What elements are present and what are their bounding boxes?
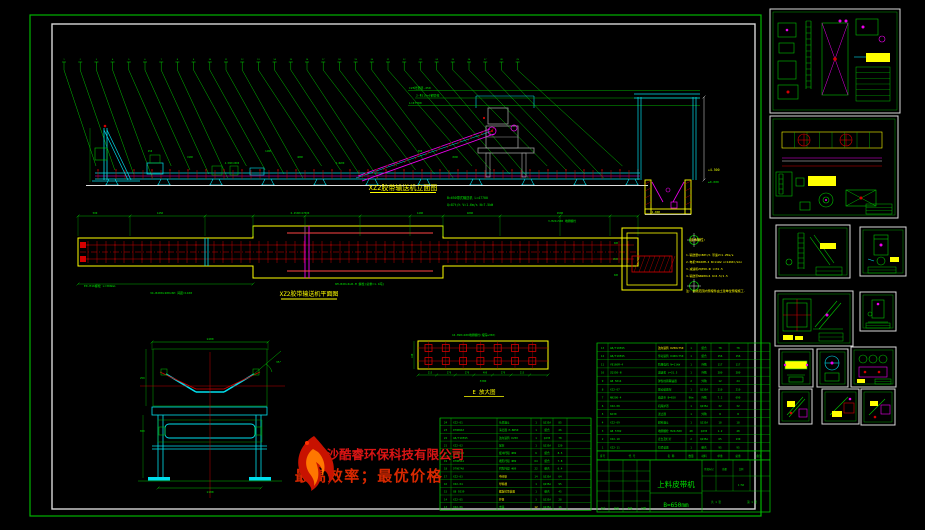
bom-cell: 156 [718,354,723,358]
bom-cell: 12 [534,505,538,509]
bom-cell: 24 [444,420,448,424]
bom-header-label: 总重 [735,454,741,458]
leader-line [420,62,509,174]
pit-hatch [645,181,651,184]
pit-dim: 600 [614,242,619,245]
plan-dot [357,258,358,259]
bom-cell: 外购 [701,362,707,366]
bom-cell: 5 [602,412,604,416]
bom-cell: 1 [690,354,692,358]
detail-sheet-2 [770,116,898,218]
idler-dot [259,169,260,170]
foot [148,477,170,481]
plan-dot [168,258,169,259]
plan-dot [303,244,304,245]
bom-cell: 卸料漏斗 [658,421,669,425]
pit-hatch [685,188,691,191]
bom-cell: 18 [444,467,448,471]
pit-plan-inner [627,233,677,285]
mid-box [250,168,264,175]
mini-rect [776,172,792,196]
tail-pulley-dot [104,125,107,128]
detail-sheet-inner-border [782,392,809,421]
balloon-number: 18 [338,59,341,61]
bom-cell: 16 [444,482,448,486]
bom-cell: 117 [736,362,741,366]
elevation-title: XZ2胶带输送机立面图 [369,183,438,192]
detail-sheet-frame [822,389,859,424]
detail-e-view: 215270270400270215 [414,341,549,376]
pit-dim: 600 [614,274,619,277]
balloon-number: 23 [419,59,422,61]
plan-dot [114,244,115,245]
balloon-number: 22 [403,59,406,61]
bom-cell: 导料槽 [499,482,507,486]
mini-block [783,335,793,340]
mini-dot [874,416,877,419]
mini-dot [825,199,827,201]
tech-line-4: 4.输送带NN200×4 δ=4.5/1.5 [686,273,728,278]
bom-header-label: 材料 [701,454,707,458]
watermark-company: 长沙酷睿环保科技有限公司 [314,447,464,462]
plan-dim-label: 500 [93,211,98,215]
plan-note-2: 34-B200×200×6H 间距≈1100 [150,290,192,295]
cad-canvas: 1234567891011121314151617181920212223242… [0,0,925,530]
leader-line [226,62,284,174]
mini-block [832,411,842,417]
stand-leg [262,179,265,185]
balloon-number: 28 [500,59,503,61]
stand-leg [219,179,222,185]
bom-cell: 8 [719,412,721,416]
balloon-number: 17 [322,59,325,61]
detail-sheet-frame [776,225,850,278]
bom-cell: XZ2-09 [610,421,620,425]
plan-note-1: E0-M16螺栓 L=300mm [84,283,115,288]
bom-header-label: 数量 [688,454,694,458]
balloon-number: 3 [96,59,98,61]
drawing-svg: 1234567891011121314151617181920212223242… [0,0,925,530]
plan-dot [546,244,547,245]
bom-cell: 45 [558,490,562,494]
balloon-number: 24 [435,59,438,61]
plan-dot [276,258,277,259]
plan-dot [384,244,385,245]
bom-header-label: 单重 [717,454,723,458]
plan-dot [249,244,250,245]
hopper-pulley [666,188,670,192]
tail-anchor [80,242,86,248]
bom-cell: 10 [601,371,605,375]
idler-dot [133,169,134,170]
leader-line [404,62,491,170]
idler-dot [151,169,152,170]
bom-cell: 40 [689,429,693,433]
detail-sheet-10 [779,389,812,424]
bom-cell: DTⅡ07A0 [453,467,464,471]
balloon-number: 9 [193,59,195,61]
idler-dot [439,169,440,170]
mini-dot [790,412,793,415]
bom-cell: 280 [718,371,723,375]
tb-label: 比例 [739,467,744,471]
bom-cell: 18 [736,421,740,425]
plan-dot [195,244,196,245]
bom-cell: 210 [736,387,741,391]
mini-rect [779,43,794,53]
balloon-number: 4 [112,59,114,61]
right-detail-panel [770,9,906,425]
bom-cell: Q235A [700,404,708,408]
detail-sheet-8 [817,349,848,387]
tech-line-1: 1.输送量Q=80t/h 带速V=1.25m/s [686,252,734,257]
bom-cell: 1 [690,387,692,391]
bom-cell: 11 [601,362,605,366]
detail-e-dim-label: 215 [428,372,433,375]
bom-cell: 32 [718,404,722,408]
bom-cell: 95 [718,445,722,449]
head-pulley-center [491,130,493,132]
mini-line [819,303,841,329]
bom-cell: XZ2-06 [453,505,463,509]
bom-cell: 2 [690,437,692,441]
bom-cell: Q235 [544,436,551,440]
balloon-number: 16 [306,59,309,61]
detail-sheet-inner-border [773,119,895,215]
tb-label: 设计 [601,506,606,510]
stand-leg [271,179,274,185]
bom-cell: 拉紧装置 [658,445,669,449]
tech-footnote: 注: 斜线范围内预埋件由土建单位预埋施工. [686,288,746,293]
mini-circle [859,355,867,363]
bom-cell: 1 [690,445,692,449]
idler-dot [601,169,602,170]
plan-note-3: 6M-B20×4LB-M 螺栓(总重≈1.1吨) [335,281,385,286]
mini-dot [878,371,881,374]
cross-section-view [138,341,285,498]
balloon-number: 15 [290,59,293,61]
plan-note-4: 3-M24×500 地脚螺栓 [548,219,576,223]
balloon-number: 6 [144,59,146,61]
bom-cell: 23 [444,428,448,432]
plan-dot [276,244,277,245]
bom-header-band [597,451,770,460]
balloon-number: 12 [241,59,244,61]
pit-plan-hatch [639,256,645,272]
mini-dot [839,20,842,23]
bom-cell: 弹性柱销联轴器 [658,379,677,383]
pit-dim: 1500 [613,258,619,261]
bom-cell: 改向滚筒 D250 [499,436,518,440]
elev-dim-label: 4-500=2000 [225,162,240,165]
bom-cell: 走台及栏杆 [658,437,672,441]
mini-dot [849,398,852,401]
detail-sheet-3 [776,225,850,278]
bom-cell: Q235A [543,497,551,501]
elev-dim-label: 4000 [297,156,303,159]
bom-cell: 78 [718,346,722,350]
tb-label: 1:50 [738,483,745,487]
bom-cell: Q235 [701,429,708,433]
balloon-number: 19 [354,59,357,61]
idler-dot [331,169,332,170]
balloon-number: 27 [484,59,487,61]
idler-dot [205,169,206,170]
detail-sheet-5 [775,291,853,346]
detail-e-dim-label: 270 [501,372,506,375]
plan-dot [141,244,142,245]
pit-plan-hatch [659,256,665,272]
plan-dot [384,258,385,259]
mini-table [866,204,892,214]
detail-sheet-inner-border [820,352,845,384]
elev-topdim-2: 2-Φ219×6钢管柱 [416,93,439,98]
phoenix-head [305,441,309,445]
detail-e-dim-label: 215 [520,372,525,375]
bom-cell: 7.2 [718,396,723,400]
elev-dim-label: 1900 [187,156,193,159]
idler-dot [367,169,368,170]
bom-cell: GB/T10595 [453,436,468,440]
incline-belt [356,131,492,178]
bom-cell: GB 5782 [610,429,622,433]
drive-platform [478,148,534,153]
stand-leg [583,179,586,185]
idler-dot [511,169,512,170]
balloon-number: 29 [516,59,519,61]
bom-right-grid [597,343,770,451]
frame-top-channel [152,407,267,415]
mini-dot [787,91,790,94]
bom-cell: 机尾护罩 [658,404,669,408]
bom-cell: XZ2-05 [453,497,463,501]
mini-block [870,401,878,406]
plan-dot [438,244,439,245]
elev-dim-label: 450 [148,150,153,153]
bom-cell: XZ2-11 [610,445,620,449]
bom-cell: GB/T10595 [610,354,625,358]
idler-dot [619,169,620,170]
bom-cell: 减速机 i=31.5 [658,371,678,375]
stand-leg [323,179,326,185]
drive-dot [483,117,485,119]
section-dim-1100: 1100 [206,490,213,494]
mini-rect [856,19,878,35]
idler-dot [529,169,530,170]
detail-sheet-6 [860,292,896,331]
plan-dot [87,244,88,245]
leader-line [453,62,547,166]
elevation-note-1: B=650带式输送机 L=47700 [447,195,488,200]
bom-cell: 防爆电机 N=11kW [658,362,680,366]
detail-sheet-inner-border [779,228,847,275]
balloon-number: 21 [387,59,390,61]
bom-tables: 24XZ2-01头部漏斗1Q235A8523DTⅡ08A3清扫器 H-B6501… [440,343,770,512]
plan-view: 50014506-4500=27000140040004500600150060… [77,211,701,293]
bom-cell: Q235A [543,474,551,478]
tech-line-2: 2.电机YB160M-4 N=11kW n=1460r/min [686,259,743,264]
bom-cell: 22 [534,467,538,471]
plan-dot [492,244,493,245]
bom-cell: 螺旋拉紧装置 [499,490,515,494]
mini-dot [877,303,880,306]
plan-dot [141,258,142,259]
bom-cell: 156 [736,354,741,358]
mini-rect [859,367,887,377]
mini-circle [869,355,877,363]
leader-line [80,62,115,170]
balloon-number: 26 [468,59,471,61]
tb-label: 第 1 张 [747,500,757,504]
plan-dim-label: 1400 [417,211,424,215]
bom-cell: DTⅡ08A3 [453,428,464,432]
bom-cell: 7 [602,396,604,400]
plan-dot [222,244,223,245]
bom-cell: 280 [736,371,741,375]
elev-topdim-3: L=47700 [409,101,422,105]
bom-cell: 中间架 [499,474,507,478]
bom-cell: GB 5014 [610,379,622,383]
bom-cell: 96m [689,396,694,400]
level-mark-zero: ±0.000 [708,180,719,184]
bom-cell: 组合 [701,346,707,350]
bom-cell: 1 [690,412,692,416]
bom-cell: 13 [444,505,448,509]
mini-circle [868,312,872,316]
plan-dot [465,244,466,245]
stand-leg [522,179,525,185]
detail-e-dim-label: 270 [447,372,452,375]
mini-circle [879,355,887,363]
mini-circle [877,257,885,265]
leader-line [339,62,415,170]
idler-dot [169,169,170,170]
detail-sheet-7 [779,349,813,387]
leader-line [64,62,96,166]
elevation-leader-lines: 1234567891011121314151617181920212223242… [62,59,622,178]
bom-cell: 78 [558,436,562,440]
pit-plan-hatch [664,256,670,272]
idler-dot [493,169,494,170]
hopper-side [652,182,663,202]
bom-cell: NJ30 [610,412,617,416]
bom-cell: ZQ350-Ⅲ [610,371,622,375]
bom-header-label: 备注 [756,454,762,458]
section-dim-width: 1400 [206,337,213,341]
detail-e-dim-label: 400 [483,372,488,375]
mini-dot [784,364,786,366]
idler-dot [475,169,476,170]
bom-cell: 1 [690,421,692,425]
bom-cell: GB 9239 [453,490,465,494]
leader-line [161,62,209,174]
detail-e-note: 16-M20×400地脚螺栓(埋深≥350) [452,333,496,337]
detail-e-side: 440 [411,353,414,358]
detail-e-title: E 放大图 [472,388,496,396]
plan-title: XZ2胶带输送机平面图 [280,290,339,298]
bom-cell: 1 [535,428,537,432]
bom-cell: 7.8 [558,459,563,463]
plan-dim-label: 1450 [157,211,164,215]
detail-e-overall: 3300 [480,379,487,383]
plan-dot [546,258,547,259]
plan-dot [411,244,412,245]
mid-box [212,166,222,175]
bom-cell: 4 [602,421,604,425]
bom-cell: Q235A [543,482,551,486]
mini-dot [786,29,789,32]
detail-sheet-11 [822,389,859,424]
bom-cell: YB160M-4 [610,362,623,366]
pit-hatch [645,202,651,205]
stand-leg [626,179,629,185]
bom-cell: 9 [602,379,604,383]
hopper-outlet [671,202,677,208]
elev-dim-label: 1400 [265,150,271,153]
plan-dot [600,244,601,245]
bom-cell: 6 [602,404,604,408]
detail-sheet-1 [770,9,900,113]
mini-dot [862,26,865,29]
bom-cell: 逆止器 [658,412,666,416]
mini-dot [826,314,829,317]
plan-dim-label: 4000 [467,211,474,215]
bom-cell: 3 [602,429,604,433]
bom-cell: 24 [736,379,740,383]
pit-hatch [645,188,651,191]
balloon-number: 7 [161,59,163,61]
mini-dot [880,244,883,247]
bom-cell: 28 [558,497,562,501]
plan-dim-label: 6-4500=27000 [291,211,310,215]
mid-box [230,166,238,175]
bom-cell: Q235A [543,444,551,448]
mini-dot [831,362,834,365]
bom-cell: 14 [444,497,448,501]
text-layer: XZ2胶带输送机立面图 B=650带式输送机 L=47700 Q=87t/h V… [84,85,746,509]
bom-cell: 8.5 [558,451,563,455]
stand-leg [470,179,473,185]
leader-line [356,62,435,174]
tb-label: 共 1 张 [711,500,721,504]
balloon-number: 1 [63,59,65,61]
idler-dot [115,169,116,170]
idler-dot [547,169,548,170]
plan-dot [87,258,88,259]
plan-dot [573,258,574,259]
bom-cell: 驱动装置架 [658,387,672,391]
mini-block [857,379,865,383]
bom-cell: 组合 [544,428,550,432]
balloon-number: 5 [128,59,130,61]
bom-cell: 1 [535,482,537,486]
bom-cell: XZ2-10 [610,437,620,441]
leader-line [96,62,133,174]
plan-dot [249,258,250,259]
idler-dot [457,169,458,170]
bom-cell: 14 [534,474,538,478]
plan-dot [411,258,412,259]
bom-cell: 130 [736,437,741,441]
detail-sheet-inner-border [863,230,903,273]
mini-block [808,176,836,186]
bom-cell: XZ2-07 [610,387,620,391]
leader-line [275,62,341,170]
detail-sheet-4 [860,227,906,276]
idler-dot [187,169,188,170]
idler-dot [241,169,242,170]
bom-cell: XZ2-08 [610,404,620,408]
